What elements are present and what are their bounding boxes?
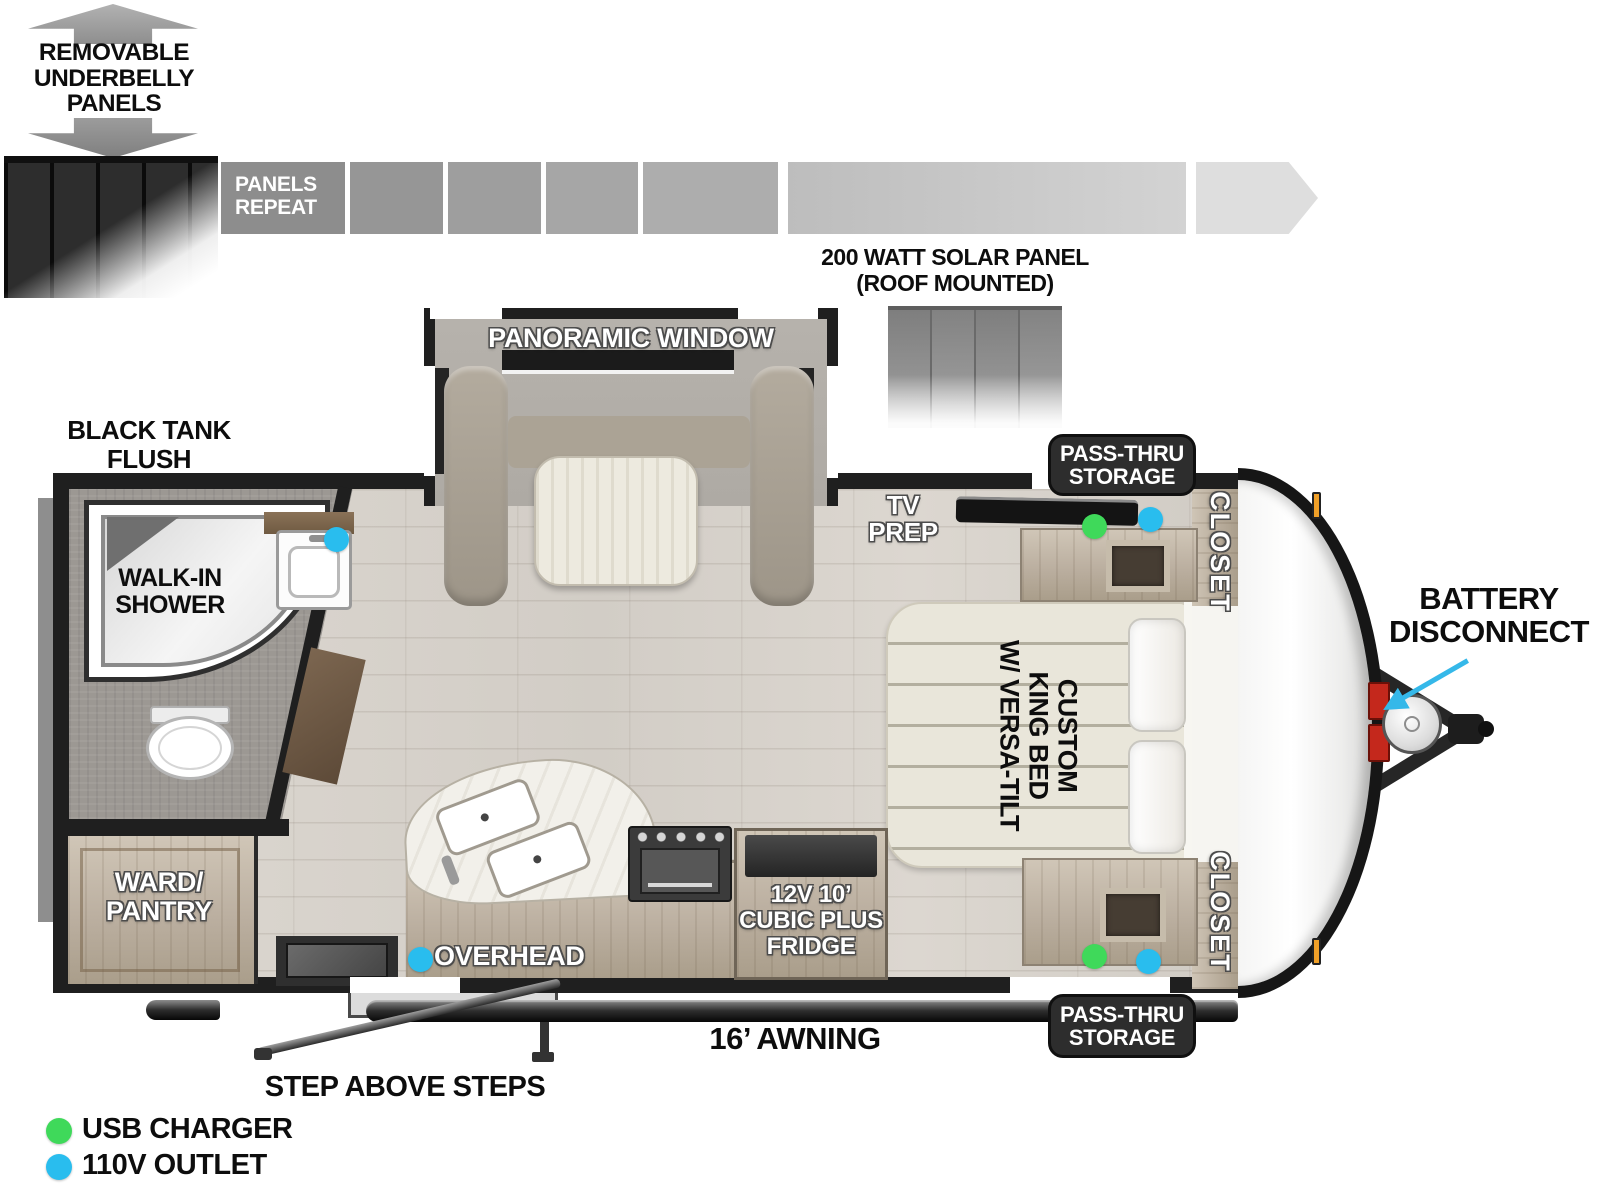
black-tank-flush-label: BLACK TANK FLUSH	[58, 416, 240, 474]
pass-thru-storage-badge-top: PASS-THRU STORAGE	[1048, 434, 1196, 496]
panel-segment	[643, 162, 778, 234]
panoramic-window-label: PANORAMIC WINDOW	[466, 324, 796, 353]
front-cap	[1238, 468, 1384, 998]
bed-label-wrap: CUSTOM KING BED W/ VERSA-TILT	[886, 602, 1190, 868]
outlet-dot-bottom	[1136, 949, 1161, 974]
toilet	[146, 706, 234, 782]
dinette-sofa-right-arm	[750, 366, 814, 606]
usb-charger-dot-top	[1082, 514, 1107, 539]
panels-repeat-label: PANELS REPEAT	[235, 174, 317, 219]
dinette-sofa-left-arm	[444, 366, 508, 606]
underbelly-down-arrow-icon	[28, 118, 198, 158]
usb-charger-dot-bottom	[1082, 944, 1107, 969]
fridge-label: 12V 10’ CUBIC PLUS FRIDGE	[726, 882, 896, 960]
awning-bar-left	[146, 1000, 220, 1020]
usb-charger-legend-label: USB CHARGER	[82, 1114, 382, 1145]
stove-knobs	[634, 830, 728, 844]
slide-top-white-gap	[738, 308, 818, 319]
overhead-label: OVERHEAD	[434, 942, 609, 971]
legend: USB CHARGER 110V OUTLET	[44, 1114, 384, 1186]
outlet-legend-label: 110V OUTLET	[82, 1150, 382, 1181]
dinette-table	[534, 456, 698, 586]
battery-disconnect-label: BATTERY DISCONNECT	[1378, 582, 1600, 648]
outlet-dot-top	[1138, 507, 1163, 532]
step-foot	[532, 1052, 554, 1062]
closet-bottom-label: CLOSET	[1205, 852, 1235, 972]
floorplan-diagram: REMOVABLE UNDERBELLY PANELS PANELS REPEA…	[0, 0, 1600, 1189]
outlet-dot-kitchen	[408, 947, 433, 972]
clearance-light-top-icon	[1312, 492, 1321, 519]
slide-side-window	[827, 366, 838, 478]
underbelly-panel-photo	[4, 156, 218, 298]
panels-strip-arrow-icon	[1196, 162, 1318, 234]
rear-bumper	[38, 498, 54, 922]
stove	[628, 826, 732, 902]
wall-window-gap-bottom	[1010, 977, 1170, 993]
pass-thru-storage-badge-bottom: PASS-THRU STORAGE	[1048, 994, 1196, 1058]
legend-outlet-row: 110V OUTLET	[44, 1150, 384, 1184]
outlet-dot-bathroom	[324, 527, 349, 552]
closet-top-label: CLOSET	[1205, 492, 1235, 612]
panel-segment	[546, 162, 638, 234]
dinette-sofa-back	[506, 356, 752, 418]
solar-panel	[888, 306, 1062, 428]
usb-charger-legend-dot	[46, 1118, 72, 1144]
awning-label: 16’ AWNING	[650, 1022, 940, 1055]
slide-top-white-gap	[430, 308, 502, 319]
slide-side-window	[424, 366, 435, 476]
overhead-cabinet-top	[1020, 528, 1198, 602]
underbelly-label: REMOVABLE UNDERBELLY PANELS	[8, 40, 220, 117]
solar-panel-label: 200 WATT SOLAR PANEL (ROOF MOUNTED)	[795, 244, 1115, 296]
panel-segment	[448, 162, 541, 234]
closet-middle-platform	[1192, 606, 1240, 862]
bathroom-bottom-wall	[57, 819, 289, 836]
step-foot	[254, 1048, 272, 1060]
legend-usb-row: USB CHARGER	[44, 1114, 384, 1148]
panel-segment	[350, 162, 443, 234]
walk-in-shower-label: WALK-IN SHOWER	[90, 565, 250, 619]
underbelly-up-arrow-icon	[28, 4, 198, 44]
outlet-legend-dot	[46, 1154, 72, 1180]
tv-prep-label: TV PREP	[838, 492, 968, 546]
panel-segment	[788, 162, 1186, 234]
panels-repeat-segment: PANELS REPEAT	[221, 162, 345, 234]
clearance-light-bottom-icon	[1312, 938, 1321, 965]
wall-window-gap-door	[350, 977, 460, 993]
tv	[956, 496, 1139, 526]
overhead-cabinet-bottom	[1022, 858, 1198, 966]
steps-label: STEP ABOVE STEPS	[240, 1072, 570, 1103]
bed-label: CUSTOM KING BED W/ VERSA-TILT	[995, 605, 1082, 865]
ward-pantry-label: WARD/ PANTRY	[74, 868, 244, 926]
